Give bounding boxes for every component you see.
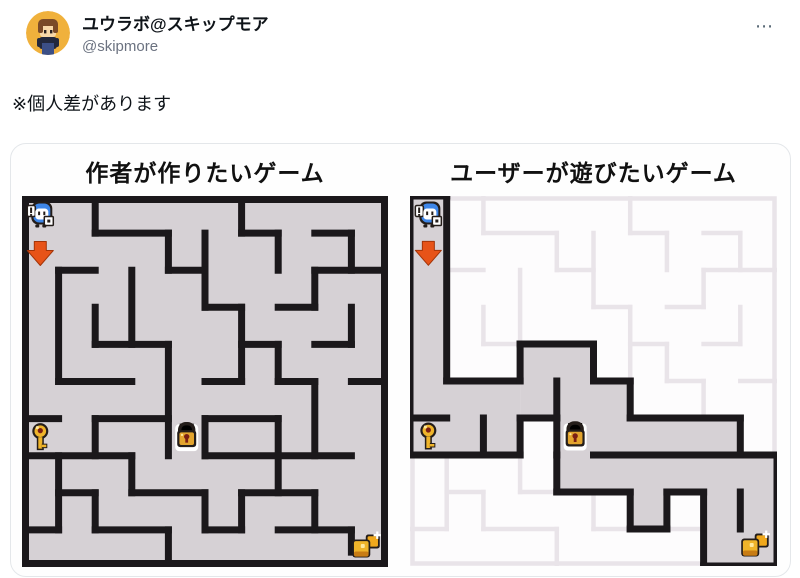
avatar-image xyxy=(26,11,70,55)
more-button[interactable]: ⋯ xyxy=(751,14,778,39)
user-handle[interactable]: @skipmore xyxy=(82,38,269,57)
left-maze xyxy=(22,196,388,567)
right-maze-title: ユーザーが遊びたいゲーム xyxy=(410,154,777,188)
left-maze-title: 作者が作りたいゲーム xyxy=(22,154,388,188)
user-identity: ユウラボ@スキップモア @skipmore xyxy=(82,14,269,57)
lock-icon xyxy=(564,423,587,451)
avatar[interactable] xyxy=(26,11,70,55)
tweet-text: ※個人差があります xyxy=(12,90,171,116)
right-maze xyxy=(410,196,777,566)
lock-icon xyxy=(175,424,198,452)
display-name[interactable]: ユウラボ@スキップモア xyxy=(82,14,269,35)
